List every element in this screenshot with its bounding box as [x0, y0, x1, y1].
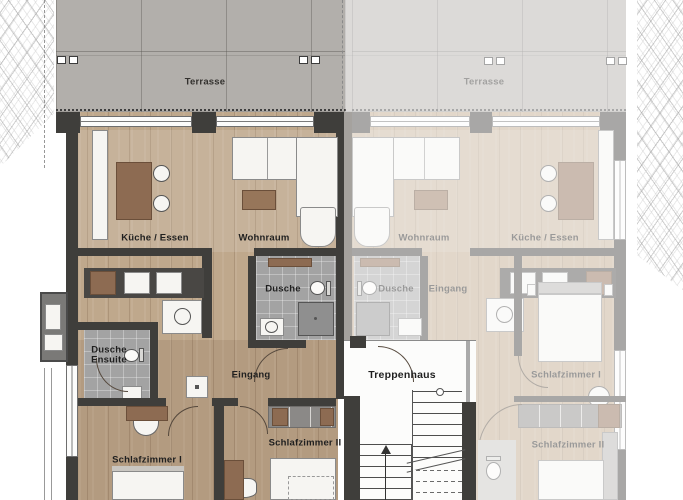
terrace-joint-line — [56, 51, 345, 52]
kitchen-island — [558, 162, 594, 220]
appliance — [156, 272, 182, 294]
exterior-wall-left — [66, 457, 78, 500]
stool — [540, 165, 557, 182]
room-label-schlafzimmer2-left: Schlafzimmer II — [269, 438, 342, 449]
terrace-marker — [57, 56, 66, 64]
wall-pier — [56, 112, 80, 133]
sink — [398, 318, 422, 336]
sofa-chaise — [352, 137, 394, 217]
terrace-marker — [618, 57, 627, 65]
toilet-tank — [486, 456, 501, 461]
bed — [538, 460, 604, 500]
axis-dashed-line — [342, 0, 343, 109]
sofa-chaise — [296, 137, 338, 217]
room-label-dusche-ensuite: Dusche Ensuite — [91, 346, 127, 367]
window — [370, 116, 470, 127]
kitchen-counter — [92, 130, 108, 240]
bed-headboard — [602, 432, 618, 500]
interior-wall — [470, 248, 626, 256]
armchair — [354, 207, 390, 247]
room-label-kueche-right: Küche / Essen — [511, 233, 579, 244]
bed — [538, 294, 602, 362]
roof-hatch-left — [0, 0, 54, 172]
bedroom-wall — [78, 398, 166, 406]
roof-edge-dashed-left — [44, 0, 45, 168]
roof-hatch-right — [637, 0, 683, 290]
room-label-kueche-left: Küche / Essen — [121, 233, 189, 244]
bath-wall — [248, 340, 306, 348]
toilet — [486, 462, 501, 480]
stairwell-wall-right — [462, 402, 476, 500]
room-label-terrasse-left: Terrasse — [185, 77, 226, 88]
wardrobe-wood — [320, 408, 334, 426]
stairwell-thin-wall — [466, 341, 470, 402]
bedroom-wall — [268, 398, 336, 406]
interior-wall — [352, 248, 422, 256]
bath-shelf — [268, 258, 312, 267]
ensuite-wall — [78, 322, 158, 330]
sink-basin — [265, 321, 278, 333]
facade-line — [44, 368, 45, 500]
coffee-table — [242, 190, 276, 210]
stairs-up-flight — [413, 391, 462, 465]
stair-direction-line — [385, 454, 386, 500]
bed-dashed-outline — [288, 476, 334, 500]
stair-stringer — [411, 444, 412, 500]
room-label-dusche-right: Dusche — [378, 284, 414, 295]
terrace-marker — [311, 56, 320, 64]
room-label-wohnraum-left: Wohnraum — [238, 233, 289, 244]
room-label-treppenhaus: Treppenhaus — [368, 369, 436, 381]
window — [216, 116, 314, 127]
terrace-boundary-dotted — [56, 109, 346, 111]
stool — [153, 165, 170, 182]
stairwell-wall-left — [344, 396, 360, 500]
stool — [153, 195, 170, 212]
room-label-wohnraum-right: Wohnraum — [398, 233, 449, 244]
terrace-marker — [69, 56, 78, 64]
room-label-eingang-right: Eingang — [429, 284, 468, 295]
shaft-unit — [44, 334, 63, 351]
terrace-joint-line — [352, 51, 626, 52]
desk — [224, 460, 244, 500]
niche-dot — [195, 385, 199, 389]
nightstand — [604, 284, 613, 296]
bedroom-wall — [212, 398, 238, 406]
exterior-wall-right — [614, 133, 626, 160]
vanity — [126, 406, 168, 421]
utility-dial — [174, 308, 191, 325]
stairs-dashed-flight — [413, 470, 462, 500]
ensuite-line1: Dusche — [91, 345, 127, 356]
toilet-tank — [326, 281, 331, 296]
wardrobe-wood — [272, 408, 288, 426]
room-label-terrasse-right: Terrasse — [464, 77, 505, 88]
terrace-marker — [299, 56, 308, 64]
facade-line — [51, 368, 52, 500]
window — [614, 160, 626, 240]
toilet-tank — [139, 348, 144, 362]
interior-wall — [78, 248, 202, 256]
window — [66, 365, 78, 457]
bedroom-wall — [514, 256, 522, 356]
stair-direction-arrow — [381, 445, 391, 454]
interior-wall — [254, 248, 338, 256]
terrace-right — [352, 0, 626, 112]
room-label-eingang-left: Eingang — [232, 370, 271, 381]
appliance — [124, 272, 150, 294]
bedroom-divider-wall — [214, 406, 224, 500]
shaft-window — [45, 304, 61, 330]
terrace-sliver — [345, 0, 352, 112]
wall-pier — [352, 112, 370, 133]
bed-headboard — [538, 282, 602, 294]
toilet-tank — [357, 281, 362, 296]
room-label-schlafzimmer2-right: Schlafzimmer II — [532, 440, 605, 451]
floor-plan: Terrasse Küche / Essen Wohnraum — [0, 0, 683, 500]
cabinet-wood — [90, 271, 116, 295]
coffee-table — [414, 190, 448, 210]
wall-pier — [470, 112, 492, 133]
utility-dial — [496, 306, 513, 323]
nightstand — [527, 284, 536, 296]
kitchen-island — [116, 162, 152, 220]
wardrobe-wood — [598, 404, 620, 428]
bath-wall — [248, 256, 256, 346]
wall-pier — [192, 112, 216, 133]
bath-shelf — [360, 258, 400, 267]
room-label-dusche-left: Dusche — [265, 284, 301, 295]
window — [80, 116, 192, 127]
ensuite-line2: Ensuite — [91, 355, 127, 366]
shower — [356, 302, 390, 336]
terrace-marker — [606, 57, 615, 65]
room-label-schlafzimmer1-right: Schlafzimmer I — [531, 370, 601, 381]
kitchen-counter — [598, 130, 614, 240]
shower-drain — [314, 317, 317, 320]
stool — [540, 195, 557, 212]
terrace-boundary-dotted — [352, 109, 626, 111]
room-label-schlafzimmer1-left: Schlafzimmer I — [112, 455, 182, 466]
stairwell-pier — [350, 336, 366, 348]
stair-newel-marker — [436, 388, 444, 396]
terrace-marker — [496, 57, 505, 65]
window — [492, 116, 600, 127]
terrace-marker — [484, 57, 493, 65]
armchair — [300, 207, 336, 247]
bed-headboard — [112, 466, 184, 472]
toilet — [362, 281, 377, 295]
bedroom-wall — [514, 396, 626, 402]
toilet — [310, 281, 325, 295]
